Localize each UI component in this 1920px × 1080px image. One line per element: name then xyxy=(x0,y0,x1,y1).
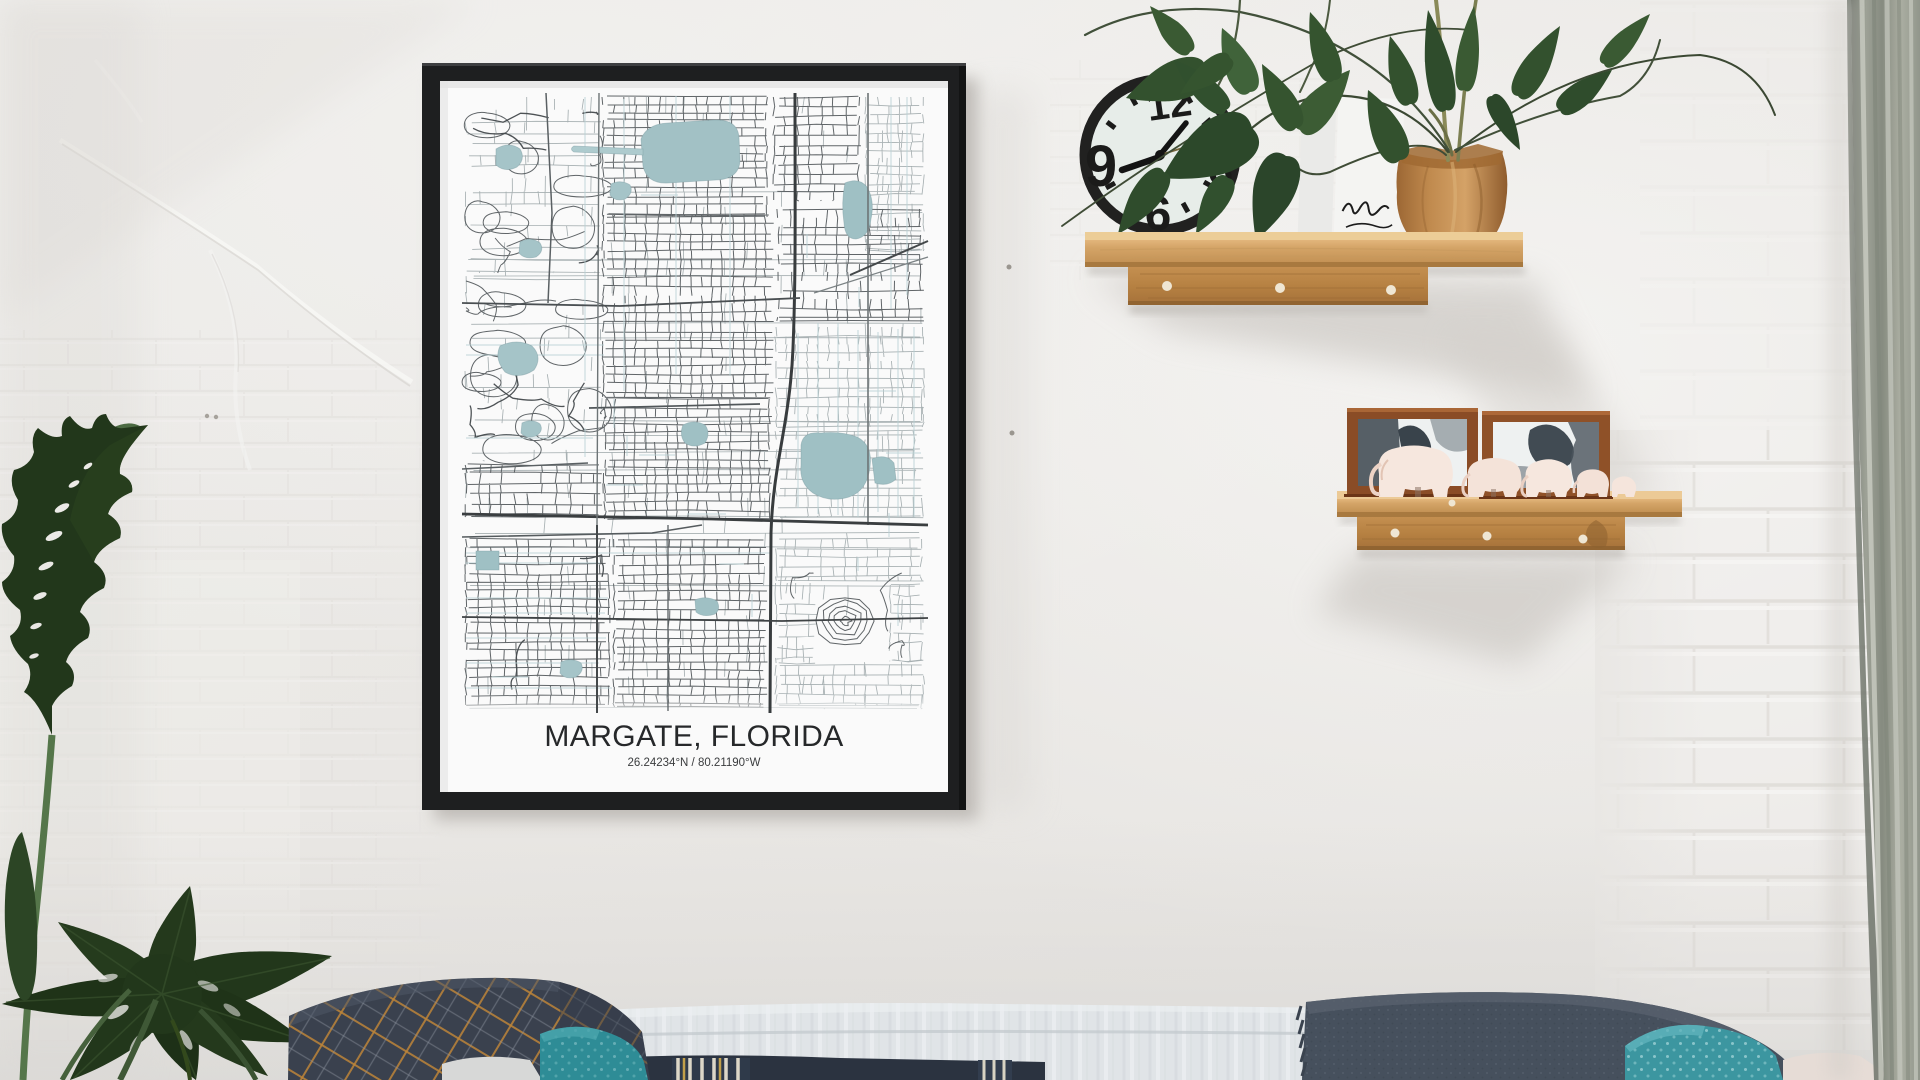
svg-text:26.24234°N / 80.21190°W: 26.24234°N / 80.21190°W xyxy=(627,757,760,769)
svg-text:MARGATE, FLORIDA: MARGATE, FLORIDA xyxy=(544,720,843,753)
